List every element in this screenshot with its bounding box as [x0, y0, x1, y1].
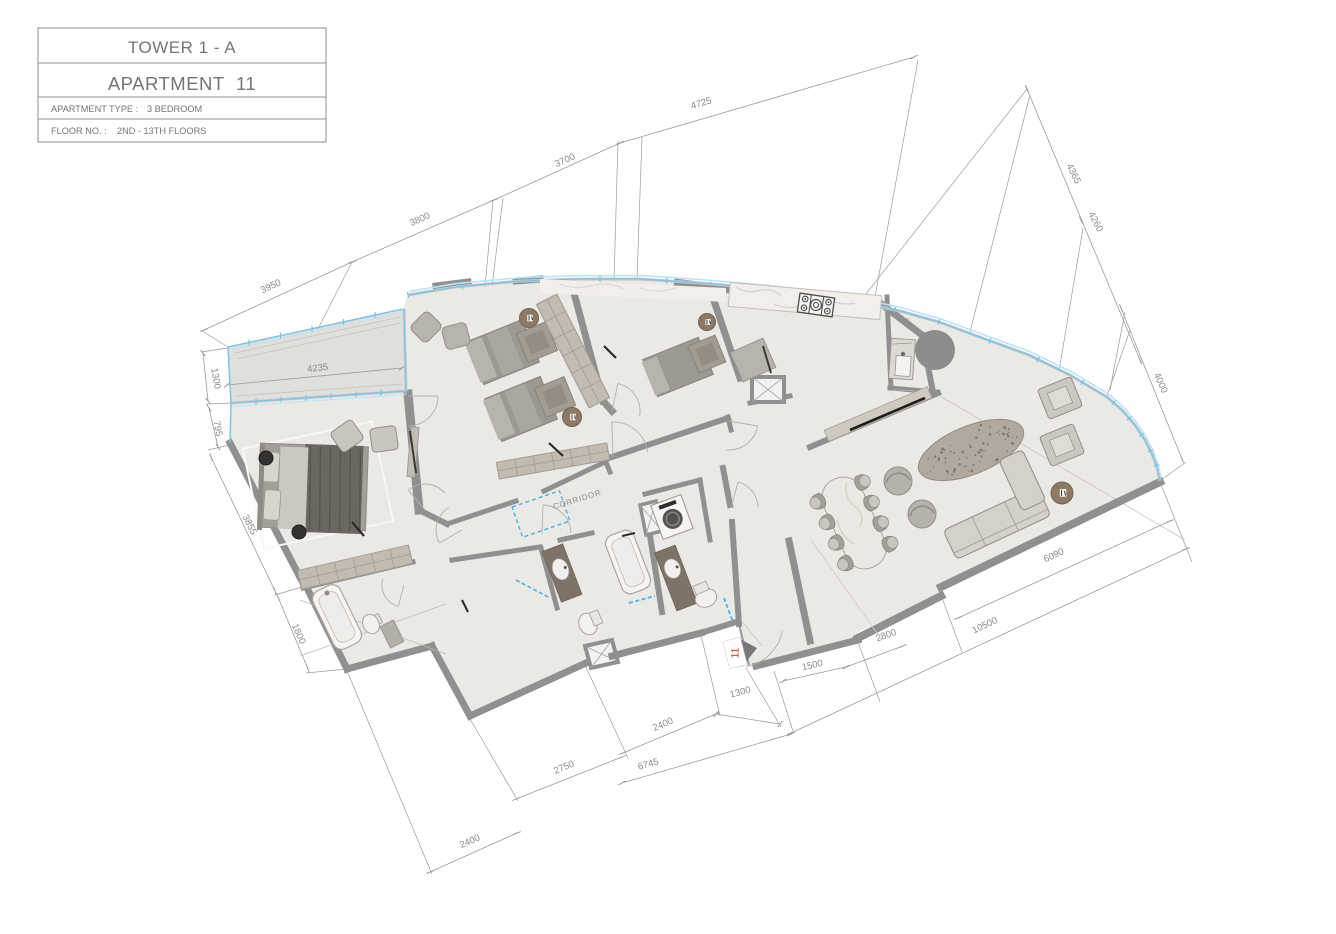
- svg-text:APARTMENT TYPE :: APARTMENT TYPE :: [51, 104, 138, 114]
- svg-text:APARTMENT 11: APARTMENT 11: [108, 73, 256, 94]
- svg-text:G: G: [904, 318, 909, 325]
- svg-text:TOWER 1 - A: TOWER 1 - A: [128, 38, 236, 57]
- svg-text:FLOOR NO. :: FLOOR NO. :: [51, 126, 107, 136]
- svg-text:2ND - 13TH FLOORS: 2ND - 13TH FLOORS: [117, 126, 206, 136]
- svg-text:3 BEDROOM: 3 BEDROOM: [147, 104, 202, 114]
- svg-text:11: 11: [729, 647, 741, 658]
